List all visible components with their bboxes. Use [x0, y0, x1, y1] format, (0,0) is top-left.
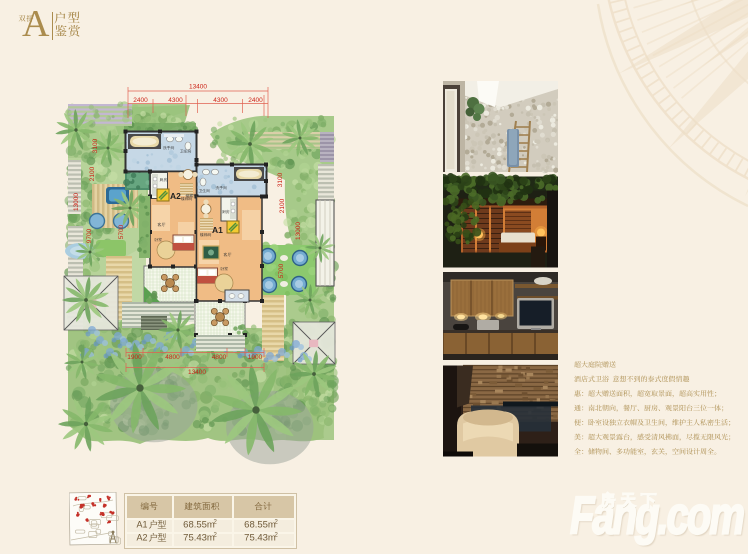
svg-text:2: 2	[214, 533, 218, 539]
svg-text:2: 2	[275, 533, 279, 539]
svg-text:68.55m: 68.55m	[244, 520, 276, 531]
svg-text:75.43m: 75.43m	[183, 533, 215, 544]
svg-text:A2: A2	[136, 533, 147, 543]
svg-text:2: 2	[275, 520, 279, 526]
svg-text:2: 2	[214, 520, 218, 526]
svg-text:75.43m: 75.43m	[244, 533, 276, 544]
svg-text:68.55m: 68.55m	[183, 520, 215, 531]
svg-text:A1: A1	[136, 520, 147, 530]
